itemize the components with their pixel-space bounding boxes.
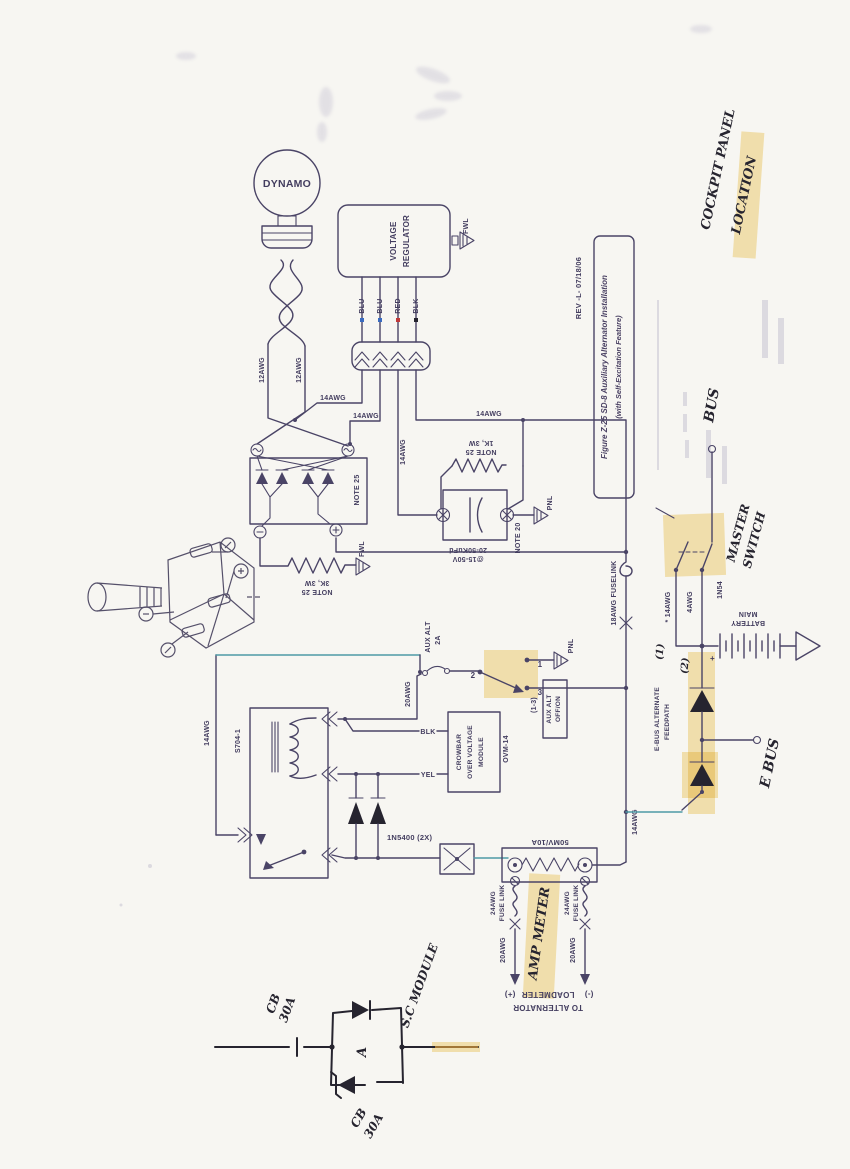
wire-label-blu2: BLU bbox=[377, 298, 384, 313]
wire-label-14awg-blead: 14AWG bbox=[632, 809, 639, 835]
rev-note: REV -L- 07/18/06 bbox=[574, 257, 583, 319]
capacitor-label-2: @15-50V bbox=[452, 555, 483, 562]
filter-capacitor: PNL 1K, 3W NOTE 25 20-50KuFd @15-50V NOT… bbox=[437, 420, 555, 562]
alternator-pictorial bbox=[88, 538, 263, 657]
shunt-circuit: 50MV/10A 24AWG FUSE LINK 24AWG FUSE LINK… bbox=[332, 838, 626, 1012]
bus-annotation: BUS bbox=[701, 387, 723, 424]
title-block: Figure Z-25 SD-8 Auxiliary Alternator In… bbox=[574, 236, 634, 498]
wire-label-14awg-star: * 14AWG bbox=[665, 591, 672, 622]
wire-label-red: RED bbox=[395, 298, 402, 314]
relay-s704: S704-1 14AWG bbox=[204, 655, 337, 878]
ground-label-fwl-vr: FWL bbox=[463, 218, 470, 234]
highlight-aux-switch bbox=[484, 650, 538, 698]
module-a-annotation: A bbox=[355, 1047, 370, 1059]
crowbar-wiring: BLK YEL 20AWG bbox=[338, 674, 448, 779]
wire-label-blu1: BLU bbox=[359, 298, 366, 313]
fuse-link-right-2: FUSE LINK bbox=[573, 885, 580, 922]
ground-label-fwl-res: FWL bbox=[359, 541, 366, 557]
main-battery: + MAIN BATTERY bbox=[700, 610, 820, 663]
vr-label-2: REGULATOR bbox=[402, 215, 411, 267]
figure-title-line1: Figure Z-25 SD-8 Auxiliary Alternator In… bbox=[600, 275, 609, 459]
suppression-diodes: 1N5400 (2X) bbox=[348, 772, 433, 860]
feedpath-2-annotation: (2) bbox=[679, 657, 691, 675]
wire-label-14awg-b: 14AWG bbox=[353, 413, 379, 420]
suppression-diodes-label: 1N5400 (2X) bbox=[387, 833, 433, 842]
ebus-annotation: E BUS bbox=[757, 737, 783, 790]
scanned-schematic-page: DYNAMO VOLTAGE REGULATOR FWL BLU BLU bbox=[0, 0, 850, 1169]
switch-pos-3: 3 bbox=[538, 688, 543, 697]
highlight-master-switch bbox=[663, 513, 726, 577]
shunt-rating-label: 50MV/10A bbox=[531, 838, 569, 847]
resistor-3k-label-2: NOTE 25 bbox=[302, 588, 333, 595]
dynamo-label: DYNAMO bbox=[263, 178, 311, 190]
ebus-feedpath-label-1: E-BUS ALTERNATE bbox=[654, 687, 661, 751]
ebus-feedpath-label-2: FEEDPATH bbox=[664, 704, 671, 740]
figure-title-line2: (with Self-Excitation Feature) bbox=[614, 315, 623, 419]
blu-color-tick bbox=[360, 318, 364, 322]
wire-label-blk: BLK bbox=[413, 298, 420, 313]
relay-connector-chevrons bbox=[238, 712, 337, 862]
battery-plus-label: + bbox=[710, 654, 715, 663]
capacitor-label-1: 20-50KuFd bbox=[449, 546, 487, 553]
switch-pos-2: 2 bbox=[471, 671, 476, 680]
highlighter-marks bbox=[432, 131, 764, 1052]
battery-label-2: BATTERY bbox=[731, 619, 765, 626]
wire-label-14awg-a: 14AWG bbox=[320, 395, 346, 402]
fuse-link-left-2: FUSE LINK bbox=[499, 885, 506, 922]
sc-module-sketch: A S.C MODULE CB 30A CB 30A bbox=[215, 941, 478, 1141]
fuse-link-left-1: 24AWG bbox=[490, 891, 497, 915]
sc-module-annotation: S.C MODULE bbox=[398, 941, 442, 1030]
battery-label-1: MAIN bbox=[739, 610, 758, 617]
wire-label-18awg-fuselink: 18AWG FUSELINK bbox=[611, 561, 618, 626]
wire-label-4awg: 4AWG bbox=[687, 591, 694, 613]
ground-label-pnl-sw: PNL bbox=[568, 638, 575, 653]
resistor-3k-label-1: 3K, 3W bbox=[304, 579, 329, 586]
bridge-rectifier: NOTE 25 bbox=[250, 444, 367, 538]
resistor-1k-label-2: NOTE 25 bbox=[466, 448, 497, 455]
fuse-link-right-1: 24AWG bbox=[564, 891, 571, 915]
crowbar-label-1: CROWBAR bbox=[456, 734, 463, 770]
aux-switch-label-2: OFF/ON bbox=[555, 696, 562, 722]
bridge-note-label: NOTE 25 bbox=[354, 475, 361, 506]
loadmeter-label: LOADMETER bbox=[522, 990, 575, 999]
aux-switch-label-1: AUX ALT bbox=[546, 694, 553, 723]
regulator-connector: BLU BLU RED BLK bbox=[352, 277, 430, 370]
aux-switch-pos-label: (1-3) bbox=[531, 697, 538, 713]
wire-label-12awg-right: 12AWG bbox=[296, 357, 303, 383]
aux-alt-circuit: AUX ALT 2A 2 1 3 PNL AUX ALT OFF/ON (1-3… bbox=[216, 621, 624, 738]
wire-label-crowbar-blk: BLK bbox=[420, 729, 435, 736]
blk-color-tick bbox=[414, 318, 418, 322]
red-color-tick bbox=[396, 318, 400, 322]
dynamo-symbol: DYNAMO bbox=[254, 150, 320, 346]
crowbar-module: CROWBAR OVER VOLTAGE MODULE OVM-14 bbox=[448, 712, 510, 792]
loadmeter-minus-label: (-) bbox=[585, 990, 594, 999]
relay-part-label: S704-1 bbox=[235, 729, 242, 753]
feedpath-1-annotation: (1) bbox=[654, 643, 666, 661]
wire-label-12awg-left: 12AWG bbox=[259, 357, 266, 383]
fuselink-18awg: 18AWG FUSELINK 14AWG bbox=[611, 552, 639, 862]
blu-color-tick2 bbox=[378, 318, 382, 322]
wire-label-20awg-left: 20AWG bbox=[500, 937, 507, 963]
wire-label-14awg-d: 14AWG bbox=[476, 411, 502, 418]
to-alternator-label: TO ALTERNATOR bbox=[513, 1003, 583, 1012]
wire-label-20awg-coil: 20AWG bbox=[405, 681, 412, 707]
switch-pos-1: 1 bbox=[538, 660, 543, 669]
wire-label-crowbar-yel: YEL bbox=[421, 772, 436, 779]
aux-breaker-label-1: AUX ALT bbox=[425, 621, 432, 653]
capacitor-note-label: NOTE 20 bbox=[515, 523, 522, 554]
diode-1n54-label: 1N54 bbox=[717, 581, 724, 599]
voltage-regulator: VOLTAGE REGULATOR FWL bbox=[338, 205, 474, 277]
ground-label-pnl-cap: PNL bbox=[547, 495, 554, 510]
wire-label-14awg-relay: 14AWG bbox=[204, 720, 211, 746]
wire-label-20awg-right: 20AWG bbox=[570, 937, 577, 963]
crowbar-label-2: OVER VOLTAGE bbox=[467, 725, 474, 779]
vr-label-1: VOLTAGE bbox=[389, 221, 398, 261]
resistor-3k: FWL 3K, 3W NOTE 25 bbox=[260, 538, 370, 595]
wiring-diagram: DYNAMO VOLTAGE REGULATOR FWL BLU BLU bbox=[0, 0, 850, 1169]
loadmeter-plus-label: (+) bbox=[505, 990, 516, 999]
aux-breaker-label-2: 2A bbox=[435, 635, 442, 644]
ground-fwl-vr: FWL bbox=[452, 218, 474, 249]
crowbar-label-3: MODULE bbox=[478, 737, 485, 767]
wire-label-14awg-c: 14AWG bbox=[400, 439, 407, 465]
resistor-1k-label-1: 1K, 3W bbox=[468, 439, 493, 446]
crowbar-part-label: OVM-14 bbox=[503, 735, 510, 763]
